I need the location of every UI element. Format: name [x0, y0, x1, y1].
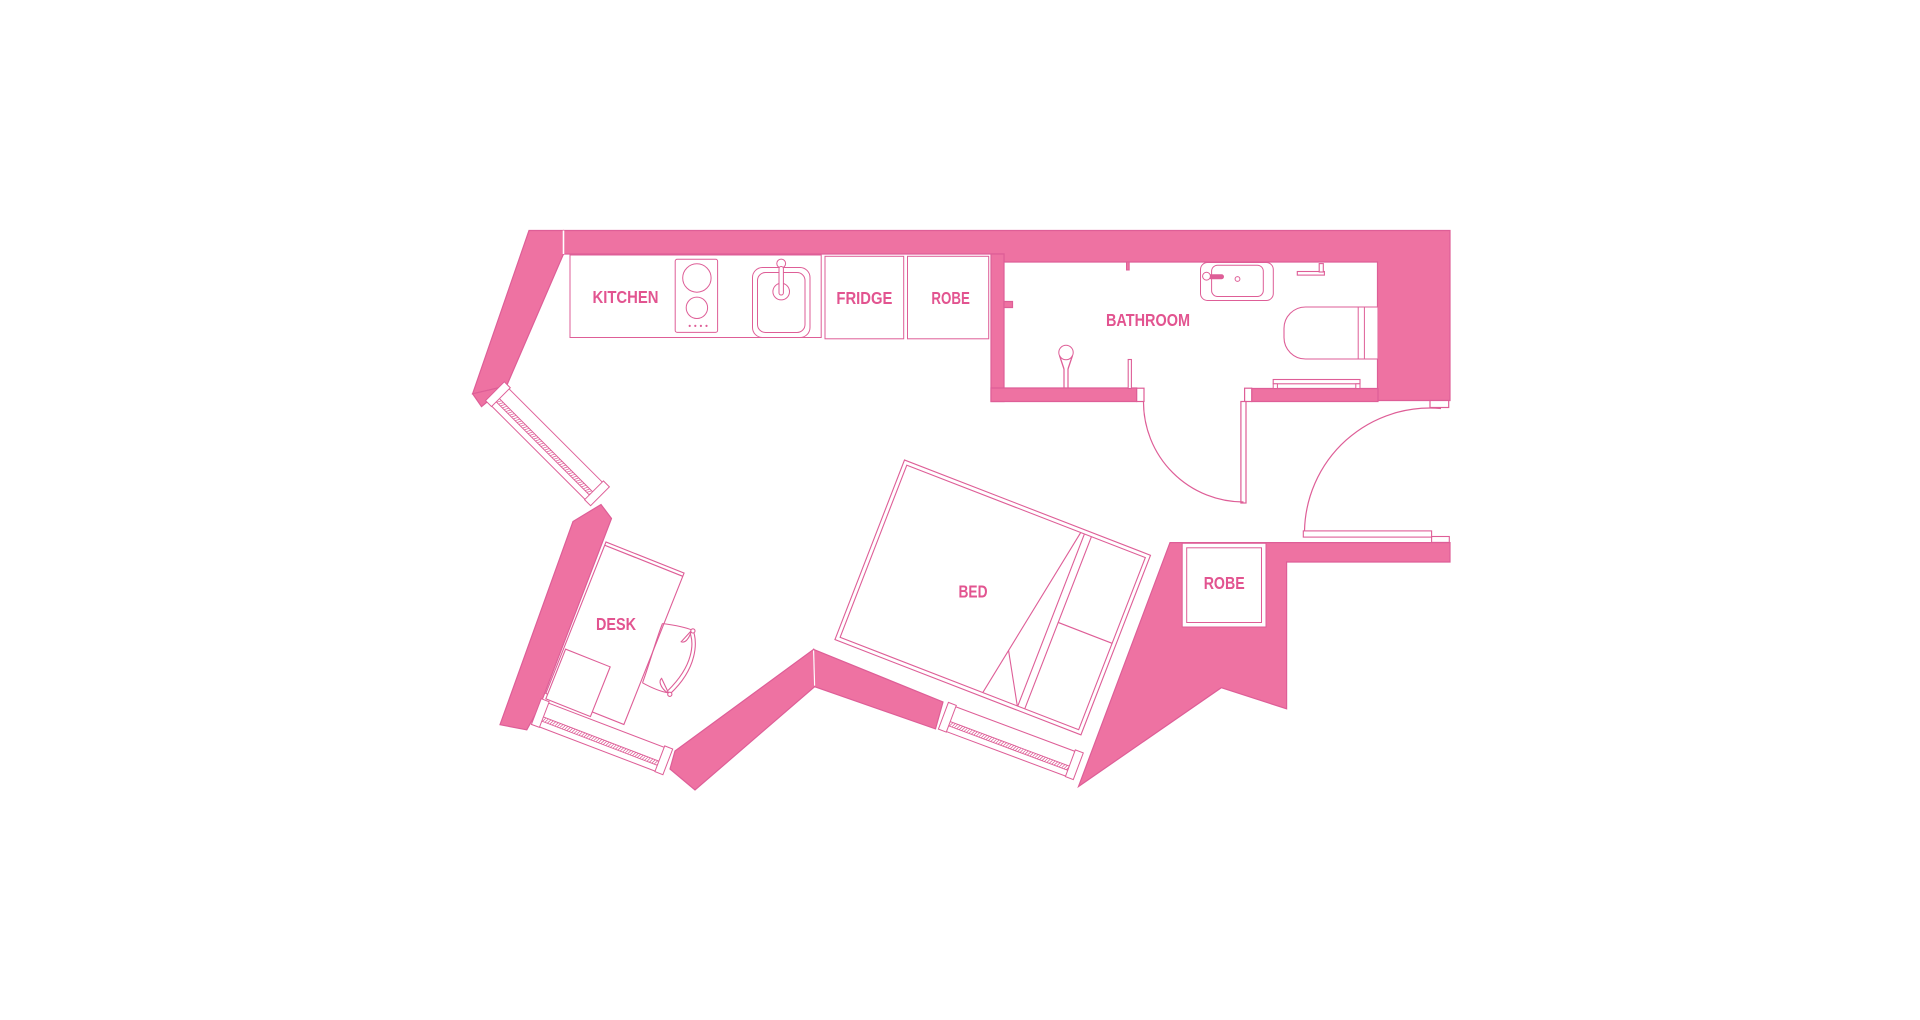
svg-text:KITCHEN: KITCHEN	[593, 287, 659, 307]
svg-text:DESK: DESK	[596, 614, 636, 634]
svg-text:ROBE: ROBE	[931, 288, 970, 308]
svg-text:ROBE: ROBE	[1204, 573, 1245, 593]
svg-text:FRIDGE: FRIDGE	[836, 288, 892, 308]
svg-text:BATHROOM: BATHROOM	[1106, 310, 1190, 330]
svg-text:BED: BED	[959, 582, 988, 602]
